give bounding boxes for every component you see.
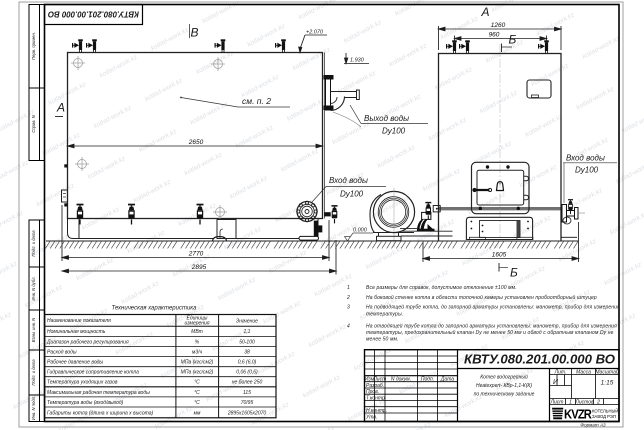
svg-text:0,6 (6,0): 0,6 (6,0) — [238, 360, 257, 366]
svg-text:Наименование показателя: Наименование показателя — [47, 318, 111, 324]
svg-text:Вход воды: Вход воды — [566, 154, 605, 163]
svg-text:°С: °С — [194, 380, 200, 386]
svg-text:Выход воды: Выход воды — [364, 114, 409, 123]
svg-text:Подп. и дата: Подп. и дата — [31, 230, 36, 257]
svg-text:Лист: Лист — [550, 400, 564, 406]
svg-text:Heatexpert- КВр-1,1-К(К): Heatexpert- КВр-1,1-К(К) — [476, 383, 532, 389]
svg-text:Диапазон рабочего регулировани: Диапазон рабочего регулирования — [46, 340, 129, 346]
svg-text:Максимальная рабочая температу: Максимальная рабочая температура воды — [47, 390, 150, 396]
svg-text:2770: 2770 — [188, 251, 204, 258]
svg-text:А: А — [56, 101, 65, 115]
svg-text:70/95: 70/95 — [241, 400, 254, 406]
svg-text:Пров.: Пров. — [366, 389, 379, 395]
svg-text:Б: Б — [510, 266, 518, 280]
svg-text:115: 115 — [243, 390, 251, 396]
svg-text:Dy100: Dy100 — [382, 127, 406, 136]
svg-text:Н.контр.: Н.контр. — [366, 408, 387, 414]
svg-text:38: 38 — [244, 350, 250, 356]
svg-text:Инв. N подл.: Инв. N подл. — [31, 396, 36, 420]
svg-text:Гидравлическое сопротивление к: Гидравлическое сопротивление котла — [47, 370, 139, 376]
svg-text:КОТЕЛЬНЫЙ: КОТЕЛЬНЫЙ — [592, 409, 618, 414]
svg-text:м3/ч: м3/ч — [192, 350, 203, 356]
svg-text:Формат А3: Формат А3 — [580, 423, 606, 428]
svg-text:1:15: 1:15 — [601, 380, 614, 387]
svg-text:Котел водогрейный: Котел водогрейный — [480, 374, 528, 381]
svg-text:2: 2 — [346, 295, 350, 301]
svg-text:0.000: 0.000 — [353, 228, 368, 234]
svg-text:Температура уходящих газов: Температура уходящих газов — [47, 380, 118, 386]
svg-text:2895х1605х2070: 2895х1605х2070 — [227, 411, 267, 417]
svg-text:Расход воды: Расход воды — [47, 350, 77, 356]
svg-text:Номинальная мощность: Номинальная мощность — [47, 329, 106, 335]
svg-text:Справ. N: Справ. N — [31, 114, 36, 132]
svg-text:ЗАВОД РЭП: ЗАВОД РЭП — [592, 414, 616, 419]
svg-text:Dy100: Dy100 — [575, 166, 599, 175]
svg-text:KVZR: KVZR — [564, 407, 592, 422]
svg-text:°С: °С — [194, 400, 200, 406]
svg-text:МВт: МВт — [191, 329, 203, 335]
svg-text:Масса: Масса — [576, 370, 591, 376]
svg-text:°С: °С — [194, 390, 200, 396]
svg-text:Листов: Листов — [574, 400, 594, 406]
svg-text:см. п. 2: см. п. 2 — [242, 96, 271, 106]
svg-text:температуры, предохранительный: температуры, предохранительный клапан Dу… — [366, 329, 614, 336]
svg-text:Рабочее давление воды: Рабочее давление воды — [47, 360, 103, 366]
svg-text:Лит.: Лит. — [554, 370, 567, 376]
svg-text:Габариты котла (длина х ширина: Габариты котла (длина х ширина х высота) — [47, 411, 154, 417]
svg-text:1: 1 — [569, 400, 572, 406]
svg-text:960: 960 — [489, 32, 500, 39]
svg-text:На подводящей трубе котла, до: На подводящей трубе котла, до запорной а… — [366, 304, 620, 311]
svg-text:3: 3 — [347, 305, 350, 311]
svg-text:Техническая характеристика: Техническая характеристика — [112, 306, 198, 312]
svg-text:1,1: 1,1 — [244, 329, 251, 335]
svg-text:Dy100: Dy100 — [340, 190, 364, 199]
svg-text:Лист: Лист — [372, 377, 386, 383]
svg-text:Температура воды (вход/выход): Температура воды (вход/выход) — [47, 400, 124, 406]
svg-text:Вход воды: Вход воды — [329, 176, 368, 185]
svg-text:Т.контр.: Т.контр. — [366, 396, 386, 402]
svg-text:Взам. инв. N: Взам. инв. N — [31, 317, 36, 342]
svg-text:Б: Б — [509, 33, 517, 47]
svg-text:1605: 1605 — [492, 252, 507, 259]
svg-text:Инв. N дубл.: Инв. N дубл. — [31, 276, 36, 300]
svg-text:N докум.: N докум. — [391, 377, 411, 383]
svg-text:Дата: Дата — [440, 377, 454, 383]
svg-text:Подп. и дата: Подп. и дата — [31, 359, 36, 386]
svg-text:В: В — [191, 26, 199, 40]
svg-text:2650: 2650 — [188, 139, 204, 146]
svg-text:4: 4 — [347, 324, 350, 330]
svg-text:Значение: Значение — [236, 319, 258, 325]
svg-text:2: 2 — [596, 400, 600, 406]
svg-text:А: А — [481, 5, 490, 19]
svg-text:Масштаб: Масштаб — [595, 370, 619, 376]
svg-text:измерения: измерения — [184, 321, 209, 327]
svg-text:температуры.: температуры. — [366, 312, 403, 318]
svg-text:1.930: 1.930 — [350, 58, 365, 64]
svg-text:Утв.: Утв. — [366, 415, 377, 421]
svg-text:1: 1 — [347, 285, 350, 291]
svg-text:КВТУ.080.201.00.000 ВО: КВТУ.080.201.00.000 ВО — [464, 352, 615, 367]
svg-text:МПа (кгс/см2): МПа (кгс/см2) — [181, 370, 214, 376]
svg-text:На отводящей трубе котла до за: На отводящей трубе котла до запорной арм… — [366, 323, 617, 330]
svg-text:Все размеры для справок, допус: Все размеры для справок, допустимое откл… — [366, 285, 517, 291]
svg-text:мм: мм — [194, 411, 201, 417]
svg-text:по техническому задание: по техническому задание — [474, 392, 535, 398]
svg-text:Подп.: Подп. — [421, 377, 434, 383]
svg-text:%: % — [195, 340, 200, 346]
svg-text:менее 50 мм.: менее 50 мм. — [366, 337, 399, 343]
svg-text:1260: 1260 — [491, 22, 506, 29]
svg-text:МПа (кгс/см2): МПа (кгс/см2) — [181, 360, 214, 366]
svg-text:На боковой стенке котла в обла: На боковой стенке котла в области топочн… — [366, 294, 597, 301]
svg-text:не более 250: не более 250 — [232, 380, 263, 386]
svg-text:КВТУ.080.201.00.000 ВО: КВТУ.080.201.00.000 ВО — [48, 9, 139, 19]
svg-text:2895: 2895 — [191, 264, 207, 271]
svg-text:0,06 (0,6): 0,06 (0,6) — [236, 370, 258, 376]
svg-text:50-100: 50-100 — [239, 340, 255, 346]
svg-text:Перв. примен.: Перв. примен. — [31, 32, 36, 60]
